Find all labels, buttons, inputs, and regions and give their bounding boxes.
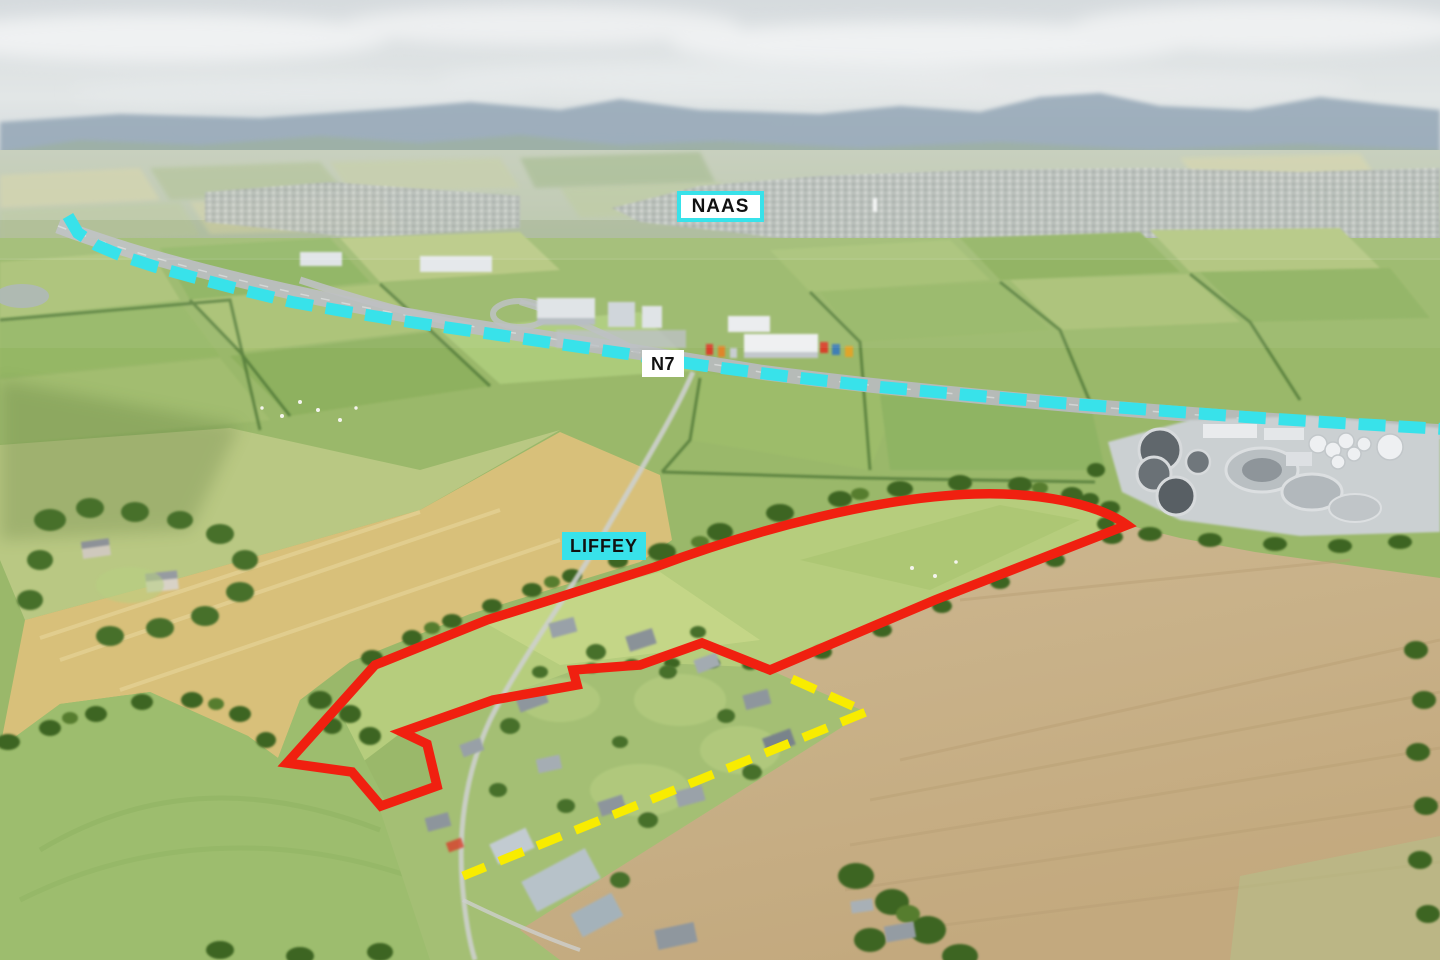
aerial-photo: NAAS N7 LIFFEY <box>0 0 1440 960</box>
naas-label: NAAS <box>677 191 764 222</box>
n7-route-line <box>68 216 1440 429</box>
annotation-overlay <box>0 0 1440 960</box>
secondary-boundary-line <box>463 679 866 876</box>
liffey-label-text: LIFFEY <box>570 537 638 555</box>
liffey-label: LIFFEY <box>562 532 646 560</box>
site-boundary-outline <box>287 494 1127 806</box>
n7-label-text: N7 <box>651 355 675 373</box>
naas-label-text: NAAS <box>692 197 750 216</box>
n7-label: N7 <box>642 350 684 377</box>
